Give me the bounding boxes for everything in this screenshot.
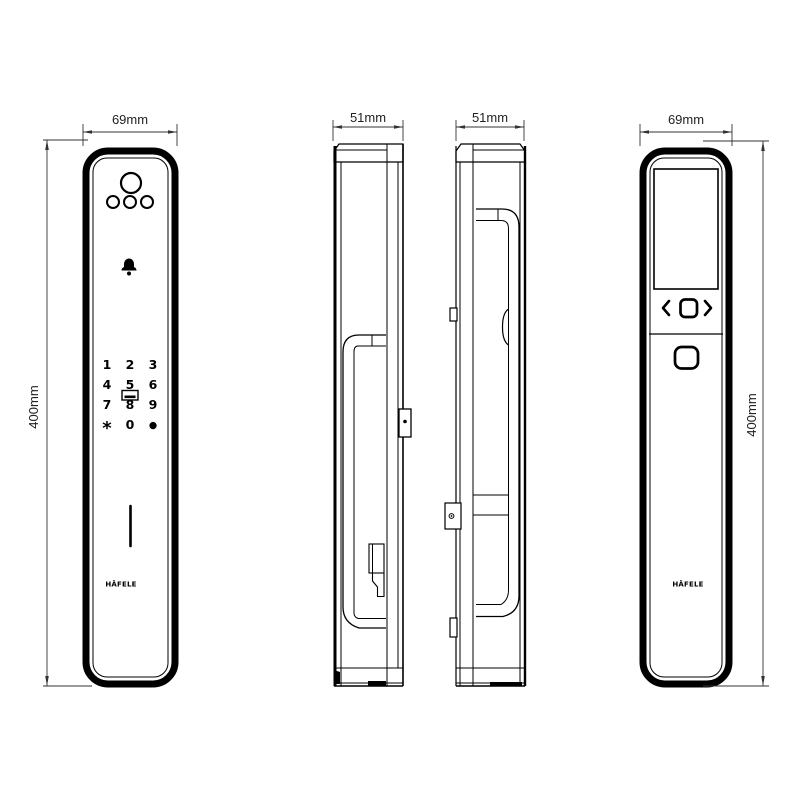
side2-handle	[473, 209, 519, 617]
exterior-side-view	[334, 144, 411, 686]
keypad-key-1: 1	[103, 357, 112, 372]
front-height-dimension: 400mm	[26, 140, 92, 686]
interior-depth-label: 51mm	[472, 110, 508, 125]
front-width-label: 69mm	[112, 112, 148, 127]
card-reader-icon	[122, 391, 138, 401]
technical-drawing-page: 1 2 3 4 5 6 7 8 9 * 0 ● HÄFELE 69mm	[0, 0, 800, 800]
exterior-depth-label: 51mm	[350, 110, 386, 125]
side2-bottom-center-detail	[490, 682, 522, 687]
screw-hole-icon	[445, 503, 461, 529]
interior-depth-dimension: 51mm	[456, 110, 524, 141]
keypad-key-0: 0	[126, 417, 135, 432]
keypad-key-star: *	[102, 418, 112, 439]
key-cover-icon	[369, 544, 384, 597]
door-lock-dimension-drawing: 1 2 3 4 5 6 7 8 9 * 0 ● HÄFELE 69mm	[0, 0, 800, 800]
side1-handle	[343, 335, 386, 628]
front-brand-logo: HÄFELE	[105, 580, 136, 589]
front-width-dimension: 69mm	[83, 112, 177, 146]
interior-side-view	[445, 144, 525, 687]
back-width-label: 69mm	[668, 112, 704, 127]
keypad-key-9: 9	[149, 397, 158, 412]
side1-top-cap	[334, 144, 403, 162]
keypad-key-2: 2	[126, 357, 135, 372]
side2-lower-tab	[450, 618, 457, 637]
side2-upper-tab	[450, 308, 457, 321]
side2-handle-grip-detail	[503, 309, 509, 345]
back-height-label: 400mm	[744, 393, 759, 436]
side1-bottom-center-detail	[368, 681, 386, 686]
keypad-key-3: 3	[149, 357, 158, 372]
keypad-key-7: 7	[103, 397, 112, 412]
side2-top-cap	[456, 144, 525, 162]
exterior-depth-dimension: 51mm	[333, 110, 403, 141]
keypad-key-6: 6	[149, 377, 158, 392]
keypad-key-hash: ●	[149, 420, 157, 431]
front-view: 1 2 3 4 5 6 7 8 9 * 0 ● HÄFELE	[86, 151, 175, 684]
back-body-outline	[643, 151, 729, 684]
front-height-label: 400mm	[26, 385, 41, 428]
keypad-key-5: 5	[126, 377, 135, 392]
back-brand-logo: HÄFELE	[672, 580, 703, 589]
keypad-key-4: 4	[103, 377, 112, 392]
latch-bolt-icon	[399, 409, 411, 437]
keypad: 1 2 3 4 5 6 7 8 9 * 0 ●	[102, 357, 157, 439]
side1-bottom-left-detail	[334, 670, 340, 684]
back-view: HÄFELE	[643, 151, 729, 684]
